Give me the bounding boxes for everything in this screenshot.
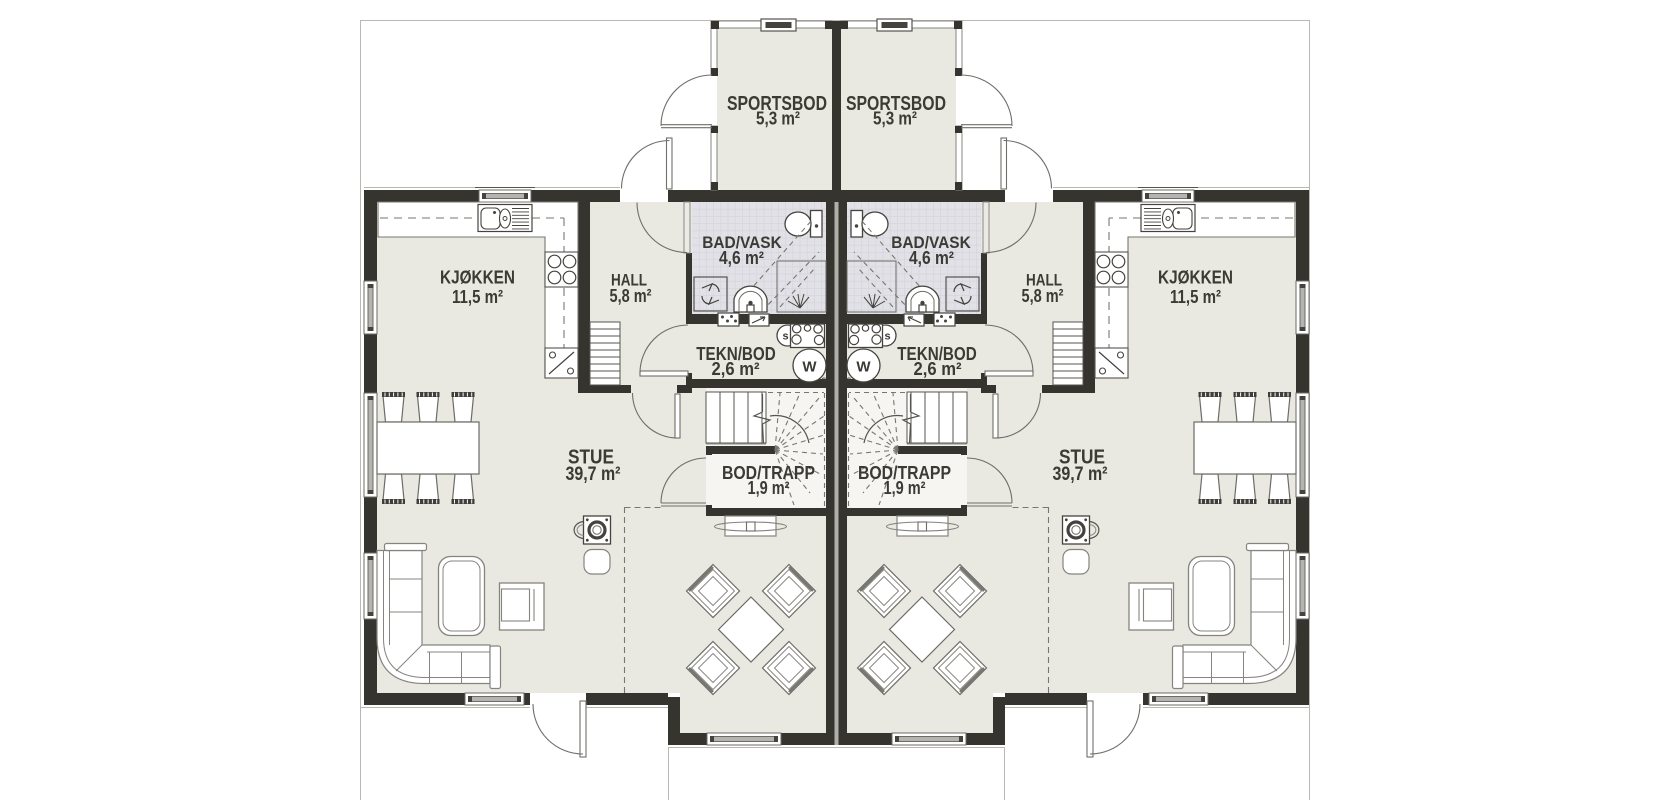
svg-text:5,3 m²: 5,3 m² — [756, 108, 800, 129]
svg-text:2,6 m²: 2,6 m² — [712, 359, 760, 379]
svg-text:39,7 m²: 39,7 m² — [566, 464, 621, 485]
svg-text:39,7 m²: 39,7 m² — [1053, 464, 1108, 485]
svg-text:W: W — [856, 359, 871, 376]
svg-text:11,5 m²: 11,5 m² — [452, 286, 503, 307]
svg-text:s: s — [782, 331, 788, 343]
svg-text:2,6 m²: 2,6 m² — [914, 359, 962, 379]
svg-text:5,8 m²: 5,8 m² — [1022, 285, 1064, 306]
svg-text:s: s — [884, 331, 890, 343]
svg-text:KJØKKEN: KJØKKEN — [440, 267, 515, 288]
svg-text:s: s — [847, 375, 852, 384]
svg-text:5,8 m²: 5,8 m² — [610, 285, 652, 306]
svg-text:KJØKKEN: KJØKKEN — [1158, 267, 1233, 288]
svg-text:s: s — [822, 375, 827, 384]
svg-text:1,9 m²: 1,9 m² — [884, 478, 926, 498]
svg-text:W: W — [802, 359, 817, 376]
svg-text:11,5 m²: 11,5 m² — [1170, 286, 1221, 307]
svg-text:4,6 m²: 4,6 m² — [719, 248, 764, 268]
svg-text:1,9 m²: 1,9 m² — [748, 478, 790, 498]
svg-text:4,6 m²: 4,6 m² — [909, 248, 954, 268]
svg-text:5,3 m²: 5,3 m² — [873, 108, 917, 129]
